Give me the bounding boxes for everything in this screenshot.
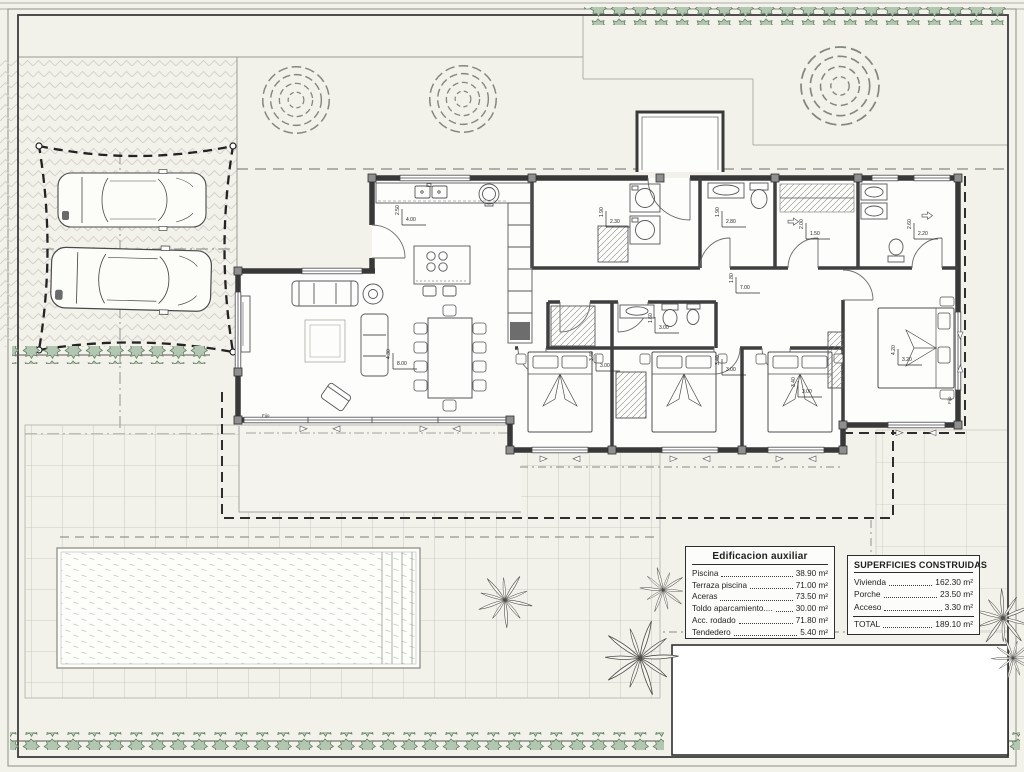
car-2	[50, 243, 212, 315]
wardrobe	[616, 372, 646, 418]
svg-text:3.00: 3.00	[659, 325, 669, 331]
fijo-label: Fijo	[947, 396, 952, 404]
svg-text:3.20: 3.20	[902, 357, 912, 363]
tree-1	[263, 67, 330, 134]
tv-unit	[241, 296, 250, 352]
bed-1	[516, 352, 603, 432]
svg-text:3.40: 3.40	[589, 351, 595, 361]
master-bed	[878, 297, 954, 399]
svg-text:2.80: 2.80	[726, 219, 736, 225]
floor-plan-drawing: 4.00 2.50 8.00 4.30 2.30 1.90 2.80 1.90 …	[0, 0, 1024, 772]
hedge-left	[12, 346, 210, 364]
table-row: Terraza piscina71.00 m²	[686, 580, 834, 592]
built-areas-table: SUPERFICIES CONSTRUIDAS Vivienda162.30 m…	[847, 555, 980, 635]
svg-text:2.50: 2.50	[395, 205, 401, 215]
table-row: Aceras73.50 m²	[686, 591, 834, 603]
table-row: Acceso3.30 m²	[848, 601, 979, 613]
table-row: Vivienda162.30 m²	[848, 576, 979, 588]
svg-text:3.00: 3.00	[726, 367, 736, 373]
svg-text:2.20: 2.20	[918, 231, 928, 237]
table-title: Edificacion auxiliar	[692, 551, 828, 565]
sofa	[292, 281, 358, 306]
fridge	[510, 322, 530, 340]
svg-text:4.00: 4.00	[406, 217, 416, 223]
svg-text:2.60: 2.60	[907, 219, 913, 229]
auxiliary-areas-table: Edificacion auxiliar Piscina38.90 m² Ter…	[685, 546, 835, 639]
svg-text:1.60: 1.60	[648, 313, 654, 323]
table-divider	[853, 616, 974, 617]
wardrobe	[828, 332, 843, 388]
svg-text:2.00: 2.00	[799, 219, 805, 229]
svg-text:3.40: 3.40	[791, 377, 797, 387]
table-row: Piscina38.90 m²	[686, 568, 834, 580]
svg-text:1.90: 1.90	[599, 207, 605, 217]
shower	[551, 306, 595, 346]
hedge-top	[584, 7, 1010, 25]
site-plan-sheet: 4.00 2.50 8.00 4.30 2.30 1.90 2.80 1.90 …	[0, 0, 1024, 772]
svg-text:2.30: 2.30	[610, 219, 620, 225]
fijo-label: Fijo	[262, 413, 270, 418]
table-row: Porche23.50 m²	[848, 588, 979, 600]
table-title: SUPERFICIES CONSTRUIDAS	[854, 560, 973, 573]
house: 4.00 2.50 8.00 4.30 2.30 1.90 2.80 1.90 …	[234, 112, 963, 462]
tree-2	[430, 66, 497, 133]
table-row: Tendedero5.40 m²	[686, 627, 834, 639]
svg-text:7.00: 7.00	[740, 285, 750, 291]
svg-text:3.00: 3.00	[600, 363, 610, 369]
auxiliary-building	[672, 645, 1008, 755]
svg-text:8.00: 8.00	[397, 361, 407, 367]
svg-text:3.40: 3.40	[715, 355, 721, 365]
svg-text:4.30: 4.30	[386, 349, 392, 359]
svg-text:1.50: 1.50	[810, 231, 820, 237]
sofa-2	[361, 314, 388, 376]
svg-text:1.90: 1.90	[715, 207, 721, 217]
tree-3	[801, 47, 879, 125]
svg-text:4.20: 4.20	[891, 345, 897, 355]
entry-porch	[637, 112, 723, 172]
car-1	[58, 170, 206, 231]
table-row: Acc. rodado71.80 m²	[686, 615, 834, 627]
bed-2	[640, 352, 727, 432]
porch	[239, 426, 521, 512]
svg-text:1.80: 1.80	[729, 273, 735, 283]
svg-text:3.00: 3.00	[802, 389, 812, 395]
table-total-row: TOTAL189.10 m²	[848, 618, 979, 630]
utility-closet	[598, 226, 628, 262]
table-row: Toldo aparcamiento....30.00 m²	[686, 603, 834, 615]
